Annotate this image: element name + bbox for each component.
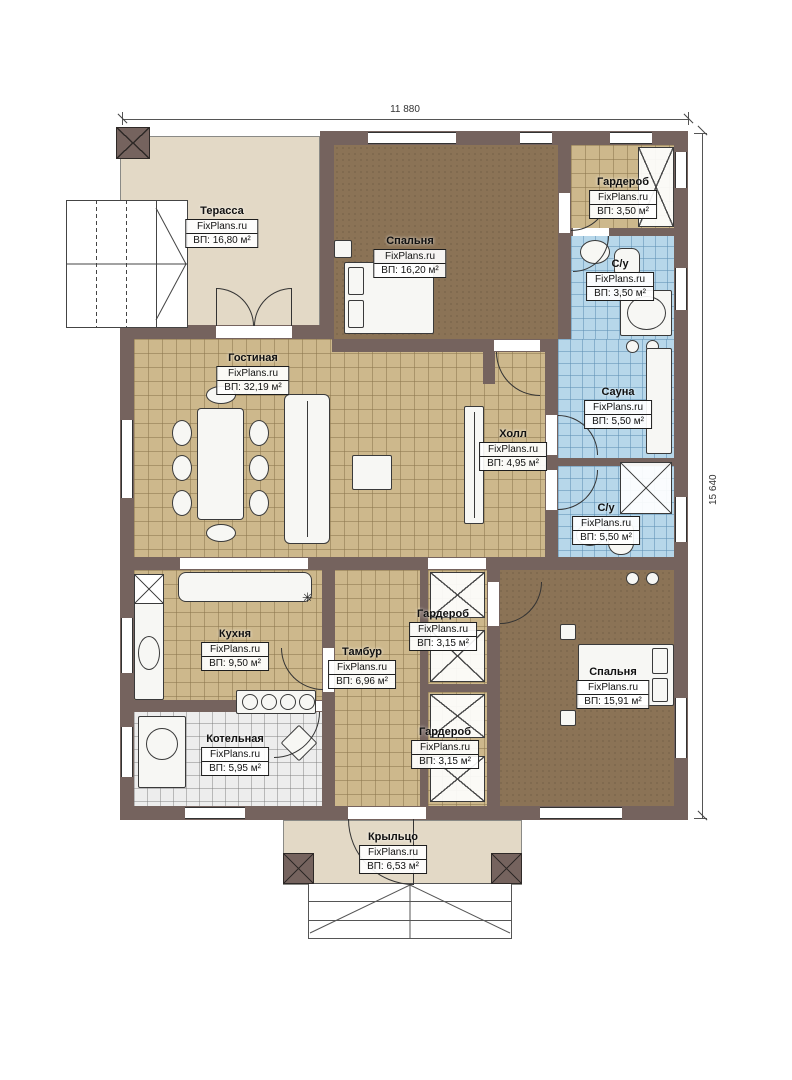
- door-opening-sauna: [546, 415, 557, 455]
- vent-symbol: ✳: [302, 590, 313, 606]
- chair: [172, 455, 192, 481]
- watermark: FixPlans.ru: [480, 443, 546, 457]
- room-label-living: Гостиная FixPlans.ru ВП: 32,19 м²: [216, 352, 289, 395]
- room-area: ВП: 16,80 м²: [186, 234, 257, 247]
- nightstand: [560, 624, 576, 640]
- room-area: ВП: 3,50 м²: [590, 205, 656, 218]
- door-opening-bedroom-top: [494, 340, 540, 351]
- watermark: FixPlans.ru: [587, 273, 653, 287]
- watermark: FixPlans.ru: [360, 846, 426, 860]
- room-info-box: FixPlans.ru ВП: 4,95 м²: [479, 442, 547, 471]
- room-name: Гардероб: [419, 726, 471, 738]
- room-name: Гардероб: [417, 608, 469, 620]
- room-name: Крыльцо: [368, 831, 418, 843]
- dimension-line-right: [702, 133, 703, 818]
- fridge: [134, 574, 164, 604]
- watermark: FixPlans.ru: [217, 367, 288, 381]
- room-info-box: FixPlans.ru ВП: 3,15 м²: [409, 622, 477, 651]
- sofa-cushion-line: [307, 401, 308, 537]
- room-name: Кухня: [219, 628, 251, 640]
- room-label-hall: Холл FixPlans.ru ВП: 4,95 м²: [479, 428, 547, 471]
- room-area: ВП: 32,19 м²: [217, 381, 288, 394]
- room-info-box: FixPlans.ru ВП: 3,50 м²: [586, 272, 654, 301]
- room-area: ВП: 6,96 м²: [329, 675, 395, 688]
- tv-line: [474, 412, 475, 519]
- watermark: FixPlans.ru: [202, 748, 268, 762]
- window: [675, 152, 687, 188]
- pillow: [348, 267, 364, 295]
- terrace-stairs: [66, 200, 188, 328]
- room-info-box: FixPlans.ru ВП: 5,50 м²: [584, 400, 652, 429]
- door-opening-entry: [348, 807, 426, 819]
- window: [121, 618, 133, 673]
- column-porch-right: [491, 853, 522, 884]
- watermark: FixPlans.ru: [585, 401, 651, 415]
- room-label-wardrobe-mid: Гардероб FixPlans.ru ВП: 3,15 м²: [409, 608, 477, 651]
- pillow: [652, 648, 668, 674]
- opening-kitchen-living: [180, 558, 308, 569]
- room-name: Сауна: [601, 386, 634, 398]
- window: [610, 132, 652, 144]
- room-name: Терасса: [200, 205, 244, 217]
- dining-table: [197, 408, 244, 520]
- room-name: С/у: [611, 258, 628, 270]
- room-info-box: FixPlans.ru ВП: 16,80 м²: [185, 219, 258, 248]
- window: [675, 268, 687, 310]
- room-area: ВП: 5,50 м²: [585, 415, 651, 428]
- nightstand: [334, 240, 352, 258]
- room-info-box: FixPlans.ru ВП: 5,95 м²: [201, 747, 269, 776]
- room-area: ВП: 3,15 м²: [410, 637, 476, 650]
- room-name: Спальня: [589, 666, 637, 678]
- room-info-box: FixPlans.ru ВП: 9,50 м²: [201, 642, 269, 671]
- wall-terrace-bedroom: [320, 131, 334, 339]
- room-area: ВП: 5,95 м²: [202, 762, 268, 775]
- room-label-bathroom-top: С/у FixPlans.ru ВП: 3,50 м²: [586, 258, 654, 301]
- column-terrace: [116, 127, 150, 159]
- room-label-bathroom-mid: С/у FixPlans.ru ВП: 5,50 м²: [572, 502, 640, 545]
- room-info-box: FixPlans.ru ВП: 32,19 м²: [216, 366, 289, 395]
- door-opening-terrace: [216, 326, 292, 338]
- room-label-wardrobe-bottom: Гардероб FixPlans.ru ВП: 3,15 м²: [411, 726, 479, 769]
- chair: [172, 420, 192, 446]
- room-info-box: FixPlans.ru ВП: 3,50 м²: [589, 190, 657, 219]
- pillow: [652, 678, 668, 702]
- wall-bedroom-wardrobe: [558, 145, 571, 339]
- porch-steps: [308, 883, 512, 939]
- nightstand: [560, 710, 576, 726]
- room-name: Котельная: [206, 733, 264, 745]
- door-opening-bedroom-bottom: [488, 582, 499, 626]
- burner: [299, 694, 315, 710]
- room-name: Гостиная: [228, 352, 278, 364]
- window: [520, 132, 552, 144]
- watermark: FixPlans.ru: [412, 741, 478, 755]
- room-label-kitchen: Кухня FixPlans.ru ВП: 9,50 м²: [201, 628, 269, 671]
- drain: [646, 572, 659, 585]
- coffee-table: [352, 455, 392, 490]
- opening-hall-corridor: [428, 558, 486, 569]
- dimension-line-top: [122, 119, 688, 120]
- room-area: ВП: 9,50 м²: [202, 657, 268, 670]
- room-name: Гардероб: [597, 176, 649, 188]
- pillow: [348, 300, 364, 328]
- window: [185, 807, 245, 819]
- kitchen-sink: [138, 636, 160, 670]
- room-area: ВП: 3,50 м²: [587, 287, 653, 300]
- window: [540, 807, 622, 819]
- room-info-box: FixPlans.ru ВП: 15,91 м²: [576, 680, 649, 709]
- room-info-box: FixPlans.ru ВП: 3,15 м²: [411, 740, 479, 769]
- kitchen-island: [178, 572, 312, 602]
- column-porch-left: [283, 853, 314, 884]
- chair: [206, 524, 236, 542]
- room-area: ВП: 6,53 м²: [360, 860, 426, 873]
- dimension-label-height: 15 640: [708, 474, 719, 505]
- chair: [172, 490, 192, 516]
- wall-wardrobe-split: [428, 684, 487, 692]
- room-label-terrace: Терасса FixPlans.ru ВП: 16,80 м²: [185, 205, 258, 248]
- window: [675, 698, 687, 758]
- burner: [280, 694, 296, 710]
- watermark: FixPlans.ru: [202, 643, 268, 657]
- room-area: ВП: 3,15 м²: [412, 755, 478, 768]
- room-info-box: FixPlans.ru ВП: 6,53 м²: [359, 845, 427, 874]
- watermark: FixPlans.ru: [329, 661, 395, 675]
- watermark: FixPlans.ru: [186, 220, 257, 234]
- watermark: FixPlans.ru: [374, 250, 445, 264]
- room-area: ВП: 15,91 м²: [577, 695, 648, 708]
- room-info-box: FixPlans.ru ВП: 5,50 м²: [572, 516, 640, 545]
- room-name: Тамбур: [342, 646, 382, 658]
- room-info-box: FixPlans.ru ВП: 6,96 м²: [328, 660, 396, 689]
- window: [121, 420, 133, 498]
- door-opening-wardrobe-top: [559, 193, 570, 233]
- watermark: FixPlans.ru: [573, 517, 639, 531]
- window: [368, 132, 456, 144]
- wall-tambour-wardrobe: [420, 570, 428, 806]
- room-area: ВП: 16,20 м²: [374, 264, 445, 277]
- watermark: FixPlans.ru: [590, 191, 656, 205]
- window: [121, 727, 133, 777]
- drain: [626, 572, 639, 585]
- room-label-sauna: Сауна FixPlans.ru ВП: 5,50 м²: [584, 386, 652, 429]
- room-name: С/у: [597, 502, 614, 514]
- room-name: Холл: [499, 428, 527, 440]
- window: [675, 497, 687, 542]
- room-info-box: FixPlans.ru ВП: 16,20 м²: [373, 249, 446, 278]
- room-name: Спальня: [386, 235, 434, 247]
- dimension-label-width: 11 880: [390, 104, 420, 115]
- door-opening-bath-mid: [546, 470, 557, 510]
- room-label-bedroom-bottom: Спальня FixPlans.ru ВП: 15,91 м²: [576, 666, 649, 709]
- watermark: FixPlans.ru: [577, 681, 648, 695]
- room-label-wardrobe-top: Гардероб FixPlans.ru ВП: 3,50 м²: [589, 176, 657, 219]
- room-area: ВП: 4,95 м²: [480, 457, 546, 470]
- boiler-tank: [146, 728, 178, 760]
- burner: [261, 694, 277, 710]
- room-label-bedroom-top: Спальня FixPlans.ru ВП: 16,20 м²: [373, 235, 446, 278]
- chair: [249, 455, 269, 481]
- watermark: FixPlans.ru: [410, 623, 476, 637]
- burner: [242, 694, 258, 710]
- room-label-tambour: Тамбур FixPlans.ru ВП: 6,96 м²: [328, 646, 396, 689]
- chair: [249, 420, 269, 446]
- room-area: ВП: 5,50 м²: [573, 531, 639, 544]
- drain: [626, 340, 639, 353]
- chair: [249, 490, 269, 516]
- sofa: [284, 394, 330, 544]
- floor-plan-canvas: 11 880 15 640: [0, 0, 792, 1080]
- room-label-porch: Крыльцо FixPlans.ru ВП: 6,53 м²: [359, 831, 427, 874]
- room-label-boiler: Котельная FixPlans.ru ВП: 5,95 м²: [201, 733, 269, 776]
